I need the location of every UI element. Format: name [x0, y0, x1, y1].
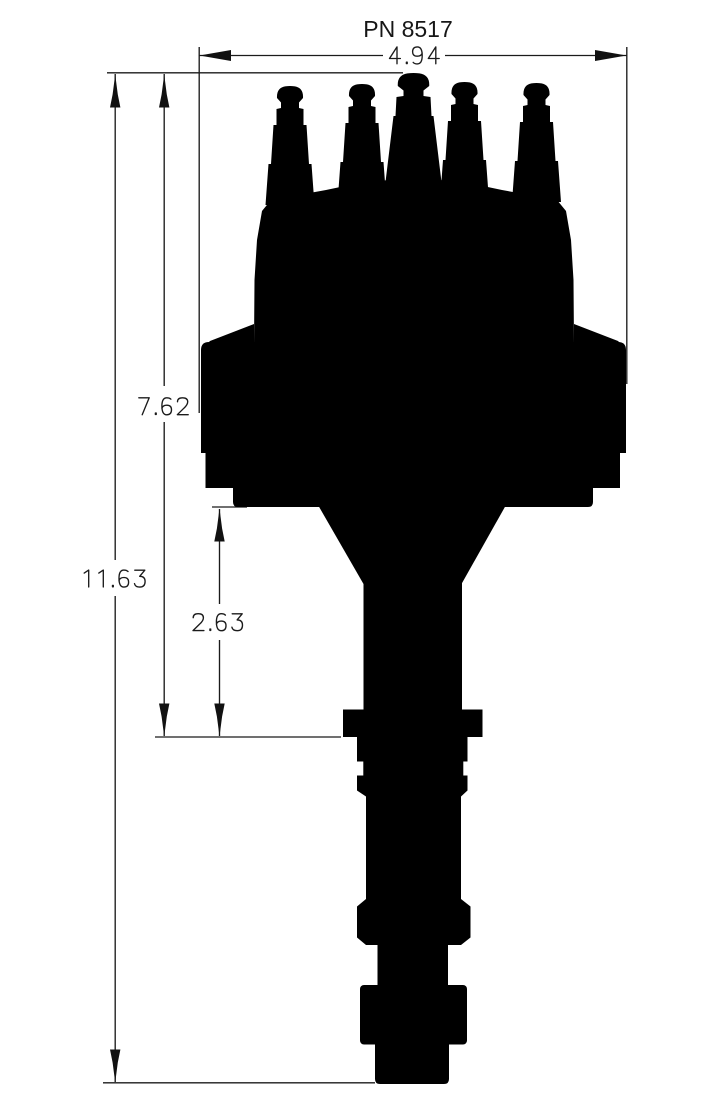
svg-text:PN 8517: PN 8517	[363, 16, 453, 42]
